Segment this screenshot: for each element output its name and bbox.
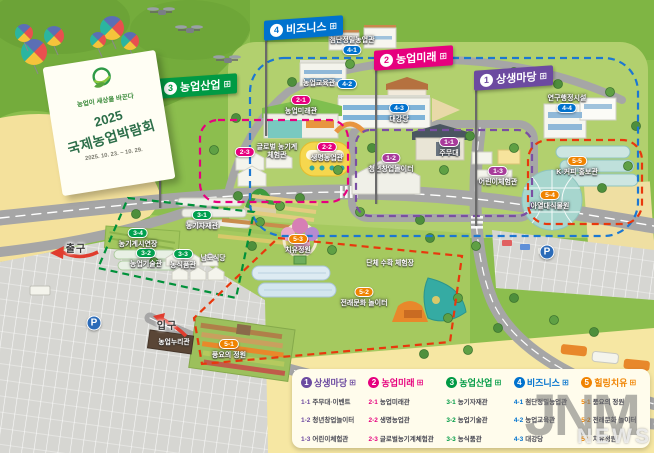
legend-item-number: 5-2 xyxy=(581,417,590,424)
legend-item-number: 2-1 xyxy=(368,399,377,406)
legend-item-number: 5-3 xyxy=(581,436,590,443)
legend-section-4: 4비즈니스⊞4-1첨단정밀농업관4-2농업교육관4-3대강당4-4연구행정시설 xyxy=(514,376,576,443)
legend-item-name: 농기자재관 xyxy=(458,399,488,406)
legend-item-name: 치유정원 xyxy=(593,436,617,443)
legend-section-title: 1상생마당⊞ xyxy=(301,376,363,389)
legend-item-name: 글로벌농기계체험관 xyxy=(380,436,434,443)
flag-grid-icon: ⊞ xyxy=(539,70,547,82)
flag-label: 비즈니스 xyxy=(286,18,326,37)
zone-flag-4: 4비즈니스⊞ xyxy=(264,15,343,41)
event-banner: 농업이 세상을 바꾼다 2025 국제농업박람회 2025. 10. 23. ~… xyxy=(43,50,176,196)
legend-section-1: 1상생마당⊞1-1주무대·이벤트1-2청년창업놀이터1-3어린이체험관 xyxy=(301,376,363,443)
legend-section-title: 5힐링치유⊞ xyxy=(581,376,644,389)
legend-zone-name: 농업미래 xyxy=(381,376,414,389)
legend-item-name: 풍요의 정원 xyxy=(593,399,625,406)
legend-zone-name: 농업산업 xyxy=(459,376,492,389)
legend-item-number: 1-3 xyxy=(301,436,310,443)
legend-item-number: 2-3 xyxy=(368,436,377,443)
legend-item-name: 농업미래관 xyxy=(380,399,410,406)
legend-item-5-2: 5-2전래문화 놀이터 xyxy=(581,410,644,426)
legend-zone-number: 4 xyxy=(514,377,525,388)
flag-label: 농업미래 xyxy=(396,48,436,67)
legend-item-2-2: 2-2생명농업관 xyxy=(368,410,441,426)
legend-item-number: 3-3 xyxy=(446,436,455,443)
legend-item-3-2: 3-2농업기술관 xyxy=(446,410,508,426)
legend-panel: 1상생마당⊞1-1주무대·이벤트1-2청년창업놀이터1-3어린이체험관2농업미래… xyxy=(292,369,650,448)
flag-grid-icon: ⊞ xyxy=(223,78,231,90)
zone-flag-1: 1상생마당⊞ xyxy=(474,65,553,91)
legend-item-name: 농업교육관 xyxy=(525,417,555,424)
legend-item-3-1: 3-1농기자재관 xyxy=(446,392,508,408)
legend-item-name: 농업기술관 xyxy=(458,417,488,424)
legend-item-3-4: 3-4농기계시연장 xyxy=(446,447,508,453)
legend-item-number: 2-2 xyxy=(368,417,377,424)
legend-item-name: 주무대·이벤트 xyxy=(312,399,350,406)
legend-item-name: 청년창업놀이터 xyxy=(312,417,354,424)
legend-zone-number: 3 xyxy=(446,377,457,388)
legend-section-2: 2농업미래⊞2-1농업미래관2-2생명농업관2-3글로벌농기계체험관 xyxy=(368,376,441,443)
flag-number: 1 xyxy=(480,73,493,87)
legend-item-name: 농식품관 xyxy=(458,436,482,443)
flag-number: 4 xyxy=(270,23,283,37)
legend-grid-icon: ⊞ xyxy=(562,378,569,387)
zone-flag-2: 2농업미래⊞ xyxy=(374,45,453,71)
legend-item-3-3: 3-3농식품관 xyxy=(446,429,508,445)
legend-item-1-3: 1-3어린이체험관 xyxy=(301,429,363,445)
legend-item-5-4: 5-4아열대식물원 xyxy=(581,447,644,453)
legend-item-5-1: 5-1풍요의 정원 xyxy=(581,392,644,408)
legend-grid-icon: ⊞ xyxy=(494,378,501,387)
legend-item-4-4: 4-4연구행정시설 xyxy=(514,447,576,453)
legend-item-number: 5-1 xyxy=(581,399,590,406)
legend-item-4-3: 4-3대강당 xyxy=(514,429,576,445)
legend-item-1-1: 1-1주무대·이벤트 xyxy=(301,392,363,408)
legend-item-number: 1-2 xyxy=(301,417,310,424)
flag-pole xyxy=(375,62,377,204)
flag-number: 3 xyxy=(164,81,177,95)
legend-zone-name: 힐링치유 xyxy=(594,376,627,389)
flag-label: 상생마당 xyxy=(496,68,536,87)
flag-number: 2 xyxy=(380,53,393,67)
legend-item-4-1: 4-1첨단정밀농업관 xyxy=(514,392,576,408)
legend-item-name: 대강당 xyxy=(525,436,543,443)
flag-label: 농업산업 xyxy=(180,76,220,95)
legend-item-2-1: 2-1농업미래관 xyxy=(368,392,441,408)
legend-section-title: 4비즈니스⊞ xyxy=(514,376,576,389)
legend-zone-number: 2 xyxy=(368,377,379,388)
legend-zone-name: 비즈니스 xyxy=(527,376,560,389)
legend-zone-number: 5 xyxy=(581,377,592,388)
legend-item-name: 어린이체험관 xyxy=(312,436,348,443)
legend-item-name: 첨단정밀농업관 xyxy=(525,399,567,406)
zone-flag-3: 3농업산업⊞ xyxy=(158,73,237,99)
legend-item-2-3: 2-3글로벌농기계체험관 xyxy=(368,429,441,445)
legend-item-number: 4-2 xyxy=(514,417,523,424)
legend-item-number: 4-1 xyxy=(514,399,523,406)
flag-grid-icon: ⊞ xyxy=(439,50,447,62)
legend-zone-number: 1 xyxy=(301,377,312,388)
legend-section-5: 5힐링치유⊞5-1풍요의 정원5-2전래문화 놀이터5-3치유정원5-4아열대식… xyxy=(581,376,644,443)
legend-item-name: 생명농업관 xyxy=(380,417,410,424)
flag-pole xyxy=(475,82,477,226)
legend-item-number: 3-1 xyxy=(446,399,455,406)
expo-logo-icon xyxy=(87,64,117,94)
legend-item-number: 1-1 xyxy=(301,399,310,406)
legend-item-4-2: 4-2농업교육관 xyxy=(514,410,576,426)
legend-zone-name: 상생마당 xyxy=(314,376,347,389)
legend-grid-icon: ⊞ xyxy=(417,378,424,387)
flag-grid-icon: ⊞ xyxy=(329,20,337,32)
legend-item-number: 4-3 xyxy=(514,436,523,443)
legend-grid-icon: ⊞ xyxy=(349,378,356,387)
expo-map: 4-1첨단정밀농업관농업교육관4-24-3대강당4-4연구행정시설2-1농업미래… xyxy=(0,0,654,453)
legend-item-5-3: 5-3치유정원 xyxy=(581,429,644,445)
legend-section-title: 3농업산업⊞ xyxy=(446,376,508,389)
legend-section-title: 2농업미래⊞ xyxy=(368,376,441,389)
legend-item-1-2: 1-2청년창업놀이터 xyxy=(301,410,363,426)
legend-section-3: 3농업산업⊞3-1농기자재관3-2농업기술관3-3농식품관3-4농기계시연장 xyxy=(446,376,508,443)
legend-item-name: 전래문화 놀이터 xyxy=(593,417,637,424)
flag-pole xyxy=(265,32,267,136)
legend-grid-icon: ⊞ xyxy=(629,378,636,387)
legend-item-number: 3-2 xyxy=(446,417,455,424)
